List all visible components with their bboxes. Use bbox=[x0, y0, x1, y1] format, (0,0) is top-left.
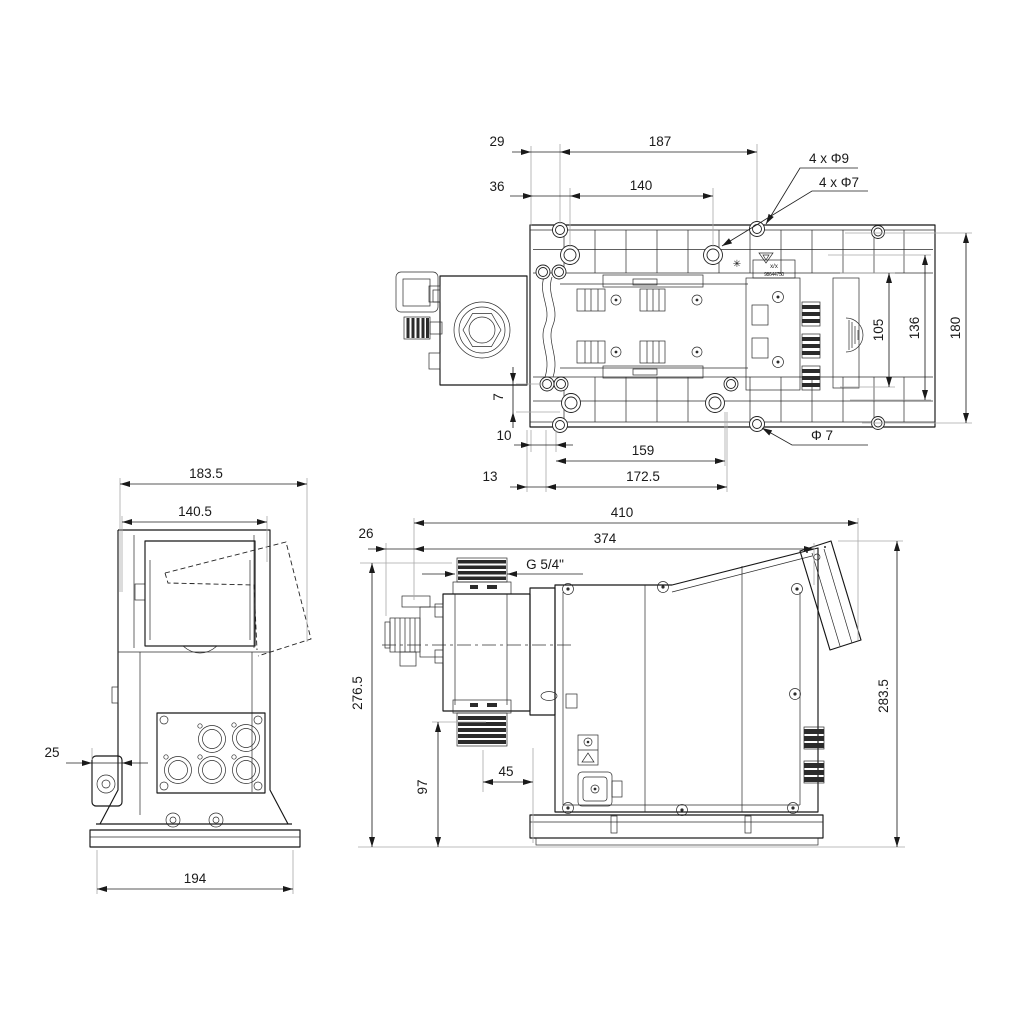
side-sockets bbox=[804, 727, 824, 783]
label-phi7-hole: Φ 7 bbox=[811, 428, 833, 443]
dim-97: 97 bbox=[415, 779, 430, 794]
warning-triangle-icon bbox=[759, 253, 773, 263]
sticker-line2: 98644750 bbox=[764, 272, 784, 278]
open-cover-dashed bbox=[165, 542, 311, 656]
dim-276-5: 276.5 bbox=[350, 676, 365, 710]
wall-bracket bbox=[833, 278, 863, 388]
dim-140-5: 140.5 bbox=[178, 504, 212, 519]
label-4x-phi9: 4 x Φ9 bbox=[809, 151, 849, 166]
dim-29: 29 bbox=[489, 134, 504, 149]
drawing-sheet: ✳ x/x 98644750 bbox=[0, 0, 1024, 1024]
sticker-line1: x/x bbox=[770, 264, 778, 270]
svg-text:✳: ✳ bbox=[733, 259, 741, 270]
dim-13: 13 bbox=[482, 469, 497, 484]
connector-plate bbox=[157, 713, 265, 793]
control-cover-side bbox=[145, 541, 255, 653]
dim-136: 136 bbox=[907, 317, 922, 340]
dim-172-5: 172.5 bbox=[626, 469, 660, 484]
dim-10: 10 bbox=[496, 428, 511, 443]
dim-26: 26 bbox=[358, 526, 373, 541]
dimensions-top-view: 29 187 36 140 4 x Φ9 4 x Φ7 105 136 180 … bbox=[482, 134, 972, 492]
snowflake-icon: ✳ bbox=[733, 259, 741, 270]
dim-45: 45 bbox=[498, 764, 513, 779]
dim-283-5: 283.5 bbox=[876, 679, 891, 713]
cable-gland-top bbox=[404, 317, 442, 339]
front-body bbox=[555, 548, 824, 816]
side-body bbox=[100, 530, 288, 824]
connector-block-top bbox=[746, 278, 820, 390]
label-thread-g54: G 5/4" bbox=[526, 557, 564, 572]
base-front bbox=[530, 815, 823, 845]
pump-head-top bbox=[396, 272, 527, 385]
warning-label bbox=[578, 735, 598, 765]
base-side bbox=[90, 813, 300, 847]
dim-183-5: 183.5 bbox=[189, 466, 223, 481]
dim-159: 159 bbox=[632, 443, 655, 458]
electrical-plug bbox=[578, 772, 622, 806]
dim-140: 140 bbox=[630, 178, 653, 193]
control-panel-tilted bbox=[800, 541, 861, 650]
drive-mechanism bbox=[560, 275, 748, 378]
side-view: 183.5 140.5 25 194 bbox=[44, 466, 311, 894]
dim-410: 410 bbox=[611, 505, 634, 520]
plate-sticker: x/x 98644750 bbox=[753, 260, 795, 278]
dim-194: 194 bbox=[184, 871, 207, 886]
top-view: ✳ x/x 98644750 bbox=[396, 134, 972, 492]
cable-connector-top bbox=[396, 272, 440, 312]
dimensional-drawing: ✳ x/x 98644750 bbox=[0, 0, 1024, 1024]
dim-7: 7 bbox=[491, 393, 506, 401]
suction-valve bbox=[453, 700, 511, 746]
dim-36: 36 bbox=[489, 179, 504, 194]
round-connectors-side bbox=[802, 302, 820, 390]
label-4x-phi7: 4 x Φ7 bbox=[819, 175, 859, 190]
round-connectors bbox=[164, 723, 260, 784]
pump-head-front bbox=[382, 558, 572, 746]
discharge-valve bbox=[453, 558, 511, 594]
dim-25: 25 bbox=[44, 745, 59, 760]
dim-105: 105 bbox=[871, 319, 886, 342]
dim-187: 187 bbox=[649, 134, 672, 149]
dim-180: 180 bbox=[948, 317, 963, 340]
cable-gland-front bbox=[385, 596, 443, 666]
dim-374: 374 bbox=[594, 531, 617, 546]
front-view: 410 374 26 G 5/4" 276.5 97 45 283.5 bbox=[350, 505, 905, 847]
